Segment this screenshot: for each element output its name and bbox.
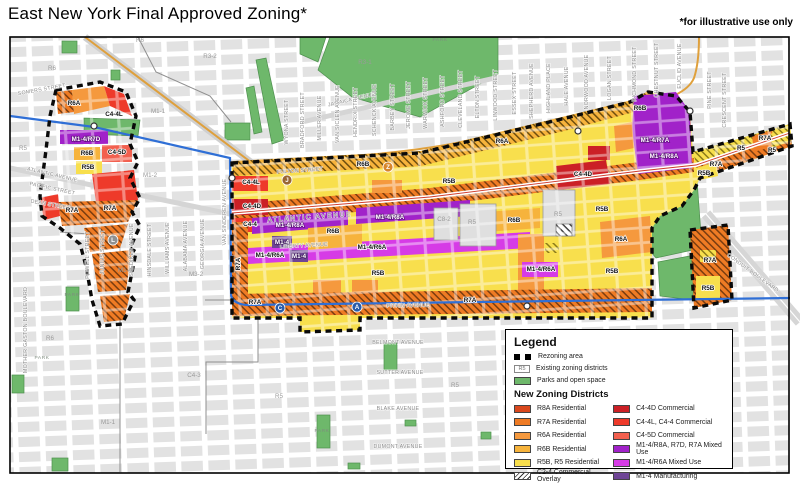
existing-zone-label: R5	[451, 382, 459, 389]
street-label: CLEVELAND STREET	[458, 70, 464, 128]
zone-label: C4-4D	[574, 171, 593, 178]
zone-label: R7A	[464, 297, 477, 304]
zone-label: M1-4	[292, 253, 307, 260]
park-label: PARK	[64, 292, 79, 298]
street-label: SUTTER AVENUE	[376, 370, 423, 376]
legend-row-c44d: C4-4D Commercial	[613, 404, 724, 413]
street-label: NORWOOD AVENUE	[584, 54, 590, 109]
zone-label: R5B	[606, 268, 619, 275]
zone-label: M1-4/R6A	[527, 266, 556, 273]
m14r8a-swatch	[613, 445, 630, 453]
zone-label: C4-4L	[242, 179, 260, 186]
street-label: CRESCENT STREET	[722, 72, 728, 128]
zone-label: R6B	[357, 161, 370, 168]
zone-label: R5B	[443, 178, 456, 185]
street-label: JUNIUS STREET	[100, 229, 106, 274]
street-label: SHEPHERD AVENUE	[529, 63, 535, 119]
legend-row-m14r8a: M1-4/R8A, R7D, R7A Mixed Use	[613, 445, 724, 454]
c24-overlay-swatch	[514, 472, 531, 480]
street-label: HIGHLAND PLACE	[546, 63, 552, 113]
street-label: BARBEY STREET	[390, 83, 396, 131]
street-label: BRADFORD STREET	[300, 92, 306, 148]
street-label: VAN SICLEN AVENUE	[335, 85, 341, 143]
legend: Legend Rezoning area R5 Existing zoning …	[505, 329, 733, 469]
zone-label: R6A	[68, 100, 81, 107]
zone-label: R7A	[66, 207, 79, 214]
zone-label: M1-4	[275, 239, 290, 246]
park-label: PARK	[34, 355, 49, 361]
street-label: MILLER AVENUE	[317, 95, 323, 140]
zone-label: R7A	[710, 161, 723, 168]
zone-label: M1-4/R7D	[72, 136, 101, 143]
southeast-rezoning-cluster	[690, 225, 732, 308]
legend-label: C4-4D Commercial	[636, 405, 695, 412]
legend-row-existing: R5 Existing zoning districts	[514, 364, 724, 373]
zone-label: C4-4L	[105, 111, 123, 118]
existing-zone-label: R6	[136, 37, 144, 44]
m14-swatch	[613, 472, 630, 480]
street-label: VAN SINDEREN AVENUE	[222, 178, 228, 245]
legend-label: C2-4 Commercial Overlay	[537, 469, 613, 483]
legend-row-r8a: R8A Residential	[514, 404, 613, 413]
existing-zone-label: R5	[19, 145, 27, 152]
park-label: PARK	[314, 428, 329, 434]
zone-label: R5B	[82, 164, 95, 171]
street-label: EUCLID AVENUE	[677, 43, 683, 88]
street-label: PITKIN AVENUE	[386, 303, 429, 310]
zone-label: M1-4/R6A	[256, 252, 285, 259]
street-label: DUMONT AVENUE	[374, 444, 423, 450]
legend-label: Parks and open space	[537, 377, 606, 384]
existing-district-symbol: R5	[514, 365, 530, 373]
street-label: JEROME STREET	[406, 81, 412, 129]
existing-zone-label: R6	[46, 335, 54, 342]
existing-zone-label: C8-2	[437, 216, 451, 223]
existing-zone-label: M1-1	[151, 108, 166, 115]
existing-zone-label: R3-1	[358, 59, 372, 66]
zone-label: R5B	[702, 285, 715, 292]
existing-zone-label: R5	[275, 393, 283, 400]
street-label: PINE STREET	[707, 71, 713, 109]
street-label: BLAKE AVENUE	[377, 406, 420, 412]
legend-row-rezoning: Rezoning area	[514, 352, 724, 361]
legend-row-r7a: R7A Residential	[514, 418, 613, 427]
zone-label: R7A	[104, 205, 117, 212]
legend-label: C4-4L, C4-4 Commercial	[636, 419, 712, 426]
c44l-swatch	[613, 418, 630, 426]
street-label: POWELL STREET	[85, 231, 91, 279]
zone-label: C4-5D	[108, 149, 127, 156]
r6a-swatch	[514, 432, 531, 440]
existing-zone-label: M3-2	[189, 271, 204, 278]
legend-label: R8A Residential	[537, 405, 586, 412]
legend-label: R6B Residential	[537, 446, 586, 453]
legend-row-r5b: R5B, R5 Residential	[514, 458, 613, 467]
street-label: BELMONT AVENUE	[372, 340, 424, 346]
existing-zone-label: M1-2	[143, 172, 158, 179]
existing-zone-label: C4-3	[187, 372, 201, 379]
subway-badge-letter: Z	[386, 164, 390, 171]
street-label: GEORGIA AVENUE	[200, 219, 206, 270]
existing-zone-label: R5	[468, 219, 476, 226]
zone-label: M1-4/R6A	[358, 244, 387, 251]
legend-row-r6b: R6B Residential	[514, 445, 613, 454]
street-label: ALABAMA AVENUE	[183, 220, 189, 271]
r6b-swatch	[514, 445, 531, 453]
station-dot	[229, 175, 235, 181]
legend-title: Legend	[514, 335, 724, 349]
r7a-swatch	[514, 418, 531, 426]
existing-zone-label: R5	[554, 211, 562, 218]
zone-label: R5B	[698, 170, 711, 177]
park-label: PARK	[432, 37, 447, 43]
street-label: HALE AVENUE	[564, 66, 570, 105]
legend-label: C4-5D Commercial	[636, 432, 695, 439]
street-label: HENDRIX STREET	[353, 87, 359, 137]
subway-badge-letter: L	[111, 237, 115, 244]
subway-badge-letter: J	[285, 177, 289, 184]
street-label: LOGAN STREET	[607, 56, 613, 100]
subway-badge-letter: C	[278, 305, 283, 312]
street-label: ESSEX STREET	[512, 71, 518, 115]
legend-label: M1-4/R8A, R7D, R7A Mixed Use	[636, 442, 724, 456]
street-label: ELTON STREET	[475, 75, 481, 118]
map-page: East New York Final Approved Zoning* *fo…	[0, 0, 800, 486]
zone-label: R6A	[496, 138, 509, 145]
street-label: SCHENCK AVENUE	[372, 84, 378, 136]
legend-label: R5B, R5 Residential	[537, 459, 599, 466]
zone-label: M1-4/R8A	[276, 222, 305, 229]
r8a-swatch	[514, 405, 531, 413]
legend-label: Existing zoning districts	[536, 365, 608, 372]
legend-label: M1-4 Manufacturing	[636, 473, 697, 480]
legend-row-c45d: C4-5D Commercial	[613, 431, 724, 440]
existing-zone-label: R3-2	[203, 53, 217, 60]
street-label: WYONA STREET	[284, 99, 290, 145]
zone-label: M1-4/R8A	[650, 153, 679, 160]
street-label: HINSDALE STREET	[147, 223, 153, 276]
zone-label: R7A	[704, 257, 717, 264]
legend-row-m14r6a: M1-4/R6A Mixed Use	[613, 458, 724, 467]
zone-label: C4-4D	[243, 203, 262, 210]
zone-label: R5	[768, 147, 777, 154]
zone-label: R5B	[596, 206, 609, 213]
zone-label: R5B	[372, 270, 385, 277]
legend-districts-title: New Zoning Districts	[514, 389, 724, 400]
legend-row-m14: M1-4 Manufacturing	[613, 472, 724, 481]
zone-label: R6B	[508, 217, 521, 224]
zone-label: R6A	[615, 236, 628, 243]
zone-label: R6B	[634, 105, 647, 112]
station-dot	[575, 128, 581, 134]
station-dot	[524, 303, 530, 309]
street-label: CHESTNUT STREET	[654, 42, 660, 97]
legend-label: R7A Residential	[537, 419, 586, 426]
street-label: MOTHER GASTON BOULEVARD	[23, 287, 29, 373]
legend-row-parks: Parks and open space	[514, 376, 724, 385]
street-label: WILLIAMS AVENUE	[165, 222, 171, 274]
legend-districts: R8A Residential R7A Residential R6A Resi…	[514, 404, 724, 486]
c45d-swatch	[613, 432, 630, 440]
existing-zone-label: M1-4	[118, 267, 133, 274]
street-label: RICHMOND STREET	[632, 46, 638, 102]
zone-label: C4-4	[243, 221, 257, 228]
parks-swatch	[514, 377, 531, 385]
m14r6a-swatch	[613, 459, 630, 467]
legend-label: Rezoning area	[538, 353, 583, 360]
zone-label: R7A	[249, 299, 262, 306]
legend-label: R6A Residential	[537, 432, 586, 439]
zone-label: R6B	[327, 228, 340, 235]
existing-zone-label: M1-1	[101, 419, 116, 426]
legend-row-r6a: R6A Residential	[514, 431, 613, 440]
zone-label: R7A	[759, 135, 772, 142]
station-dot	[91, 123, 97, 129]
zone-label: M1-4/R8A	[376, 214, 405, 221]
legend-row-c44l: C4-4L, C4-4 Commercial	[613, 418, 724, 427]
c44d-swatch	[613, 405, 630, 413]
street-label: WARWICK STREET	[423, 77, 429, 129]
zone-label: R5	[737, 145, 746, 152]
legend-label: M1-4/R6A Mixed Use	[636, 459, 701, 466]
rezoning-area-symbol	[514, 354, 531, 360]
zone-label: R7A	[235, 257, 242, 270]
subway-badge-letter: A	[355, 304, 360, 311]
station-dot	[687, 108, 693, 114]
legend-row-c24: C2-4 Commercial Overlay	[514, 472, 613, 481]
street-label: ASHFORD STREET	[440, 75, 446, 127]
zone-label: R6B	[81, 150, 94, 157]
street-label: LINWOOD STREET	[493, 69, 499, 121]
zone-label: M1-4/R7A	[641, 137, 670, 144]
existing-zone-label: R6	[48, 65, 56, 72]
r5b-swatch	[514, 459, 531, 467]
